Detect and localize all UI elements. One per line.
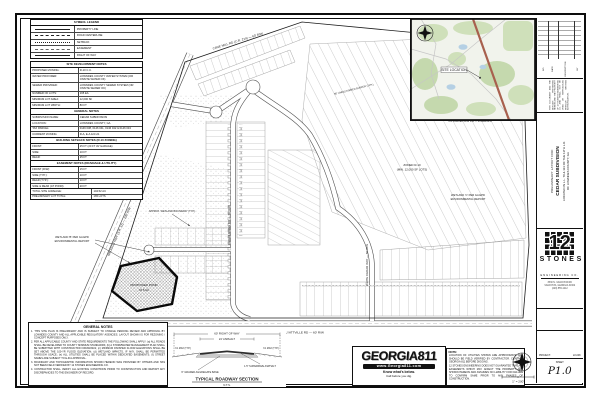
revision-header: DESCRIPTION <box>561 61 571 77</box>
project-name: CEDAR SUBDIVISION <box>555 115 560 227</box>
legend-line-sample <box>31 26 75 32</box>
legend-row: RIGHT OF WAY <box>31 53 142 59</box>
firm-name: STONES <box>540 256 583 263</box>
legend-line-sample <box>31 46 75 52</box>
legend-line-sample <box>31 40 75 46</box>
row-label: LOCATION: <box>31 121 79 126</box>
georgia811-logo: GEORGIA811 <box>352 349 445 363</box>
easement-notes-table: EASEMENT NOTES (DRAINAGE & UTILITY) FRON… <box>30 160 143 190</box>
project-number-row: PROJECT: 22-048 <box>537 352 583 359</box>
base-label: 6" GRADED AGGREGATE BASE <box>181 371 219 374</box>
row-value: 10 FT <box>79 150 142 155</box>
georgia811-tagline2: Call before you dig. <box>353 374 445 378</box>
row-value: 165 LOTS <box>92 195 142 200</box>
title-block-divider <box>537 308 583 309</box>
slope-label-right: 3:1 MAX (TYP.) <box>263 347 279 350</box>
legend-row: EASEMENT <box>31 46 142 53</box>
general-note: 4. CONTRACTOR SHALL VERIFY ALL EXISTING … <box>31 368 165 375</box>
legend-label: EASEMENT <box>75 47 142 50</box>
legend-label: SETBACK <box>75 41 142 44</box>
row-value: 80 FT <box>79 103 142 108</box>
vicinity-map: SITE LOCATION <box>410 18 536 121</box>
legend-label: ROAD CENTERLINE <box>75 34 142 37</box>
row-label: FRONT: <box>31 144 79 149</box>
legend-line-sample <box>31 33 75 39</box>
legend-line-sample <box>31 53 75 59</box>
row-label: SEWER PROVIDER: <box>31 83 79 91</box>
revision-header: BY <box>574 61 582 77</box>
project-location-2: OF LOWNDES COUNTY, GA <box>566 115 570 227</box>
legend-row: PROPERTY LINE <box>31 26 142 33</box>
roadway-section-drawing: 60' RIGHT OF WAY 24' ASPHALT 1.5" SUPERP… <box>168 327 286 387</box>
row-label: WATER PROVIDER: <box>31 74 79 82</box>
row-label: NUMBER OF LOTS: <box>31 92 79 97</box>
asphalt-label: 1.5" SUPERPAVE ASPHALT <box>244 365 276 368</box>
row-value: CEDAR SUBDIVISION <box>79 115 142 120</box>
project-info-table: GENERAL NOTES SUBDIVISION NAME:CEDAR SUB… <box>30 108 143 138</box>
row-label: MINIMUM LOT WIDTH: <box>31 103 79 108</box>
north-arrow-icon <box>510 350 534 374</box>
row-value: 10 FT <box>79 173 142 178</box>
row-value: 165 EA <box>79 92 142 97</box>
sheet-label: SHEET <box>537 361 583 364</box>
row-value: 15 FT <box>79 167 142 172</box>
project-number-label: PROJECT: <box>539 354 551 357</box>
row-label: PROPOSED ZONING: <box>31 68 79 73</box>
legend-label: RIGHT OF WAY <box>75 54 142 57</box>
table-row: SEWER PROVIDER:LOWNDES COUNTY SEWER SYST… <box>31 83 142 92</box>
roadway-section-detail: 60' RIGHT OF WAY 24' ASPHALT 1.5" SUPERP… <box>168 327 286 387</box>
dim-row-label: 60' RIGHT OF WAY <box>214 332 239 336</box>
row-value: 104.52 AC <box>92 189 142 194</box>
slope-label-left: 3:1 MAX (TYP.) <box>175 347 191 350</box>
row-value: 25 FT (20 FT W/ GARAGE) <box>79 144 142 149</box>
aggregate-base <box>196 355 258 357</box>
general-notes-box: GENERAL NOTES 1. THIS SITE PLAN IS PRELI… <box>28 322 168 386</box>
section-scale: N.T.S. <box>223 383 231 387</box>
row-label: TOTAL SITE ACREAGE: <box>31 189 92 194</box>
dim-asphalt-label: 24' ASPHALT <box>219 337 236 341</box>
revision-grid-divider <box>574 21 575 59</box>
plan-sheet-page: MADISON HWY (S.R. 31) — 100' R/WCANE MIL… <box>0 0 600 400</box>
firm-logo-block: 12 STONES ENGINEERING CO. 3530 N. VALDOS… <box>537 228 583 291</box>
map-compass-icon <box>417 25 433 41</box>
row-value: LOWNDES COUNTY SEWER SYSTEM (OR ONSITE S… <box>79 83 142 91</box>
vicinity-map-drawing: SITE LOCATION <box>411 19 535 120</box>
title-block-disclaimer: THIS DOCUMENT AND THE DESIGNS PRESENTED … <box>538 79 582 112</box>
section-title: TYPICAL ROADWAY SECTION <box>195 377 258 382</box>
title-block: NO. DATE DESCRIPTION BY THIS DOCUMENT AN… <box>536 18 583 383</box>
general-note: 3. BOUNDARY AND TOPOGRAPHIC INFORMATION … <box>31 360 165 367</box>
legend-row: SETBACK <box>31 40 142 47</box>
setback-notes-table: BUILDING SETBACK NOTES (R-10 ZONING) FRO… <box>30 137 143 161</box>
graphic-scale-bar: 1" = 200' <box>500 374 536 384</box>
symbol-legend-table: SYMBOL LEGEND PROPERTY LINE ROAD CENTERL… <box>30 19 143 59</box>
row-label: SIDE: <box>31 150 79 155</box>
row-label: FRONT (R/W): <box>31 167 79 172</box>
row-label: SUBDIVISION NAME: <box>31 115 79 120</box>
row-label: MINIMUM LOT AREA: <box>31 97 79 102</box>
project-title-block: PRELIMINARY LAYOUT FOR: CEDAR SUBDIVISIO… <box>537 113 583 229</box>
georgia811-website: www.Georgia811.com <box>363 364 435 370</box>
row-value: R-10 C.U. <box>79 68 142 73</box>
general-note: 1. THIS SITE PLAN IS PRELIMINARY AND IS … <box>31 330 165 340</box>
title-block-divider <box>537 330 583 331</box>
revision-grid-divider <box>558 21 559 59</box>
row-label: REAR (TYP.): <box>31 179 79 184</box>
georgia811-box: GEORGIA811 www.Georgia811.com Know what'… <box>352 346 446 386</box>
scale-label: 1" = 200' <box>512 380 524 384</box>
sheet-number: P1.0 <box>537 365 583 377</box>
project-number-value: 22-048 <box>573 354 580 357</box>
row-value: 10 FT <box>79 179 142 184</box>
general-note: 2. PER ALL APPLICABLE COUNTY AND STATE R… <box>31 340 165 360</box>
row-label: SIDE (TYP.): <box>31 173 79 178</box>
totals-table: TOTAL SITE ACREAGE:104.52 AC PRELIMINARY… <box>30 188 143 200</box>
row-value: LOWNDES COUNTY, GA <box>79 121 142 126</box>
row-label: TAX PARCEL: <box>31 127 79 132</box>
firm-address-3: (229) 555-1212 <box>537 288 583 291</box>
row-value: 0146 038, 0146 041, 0146 042 & 0146 043 <box>79 127 142 132</box>
site-development-notes-table: SITE DEVELOPMENT NOTES PROPOSED ZONING:R… <box>30 61 143 114</box>
revision-header: NO. <box>540 61 548 77</box>
firm-tagline: ENGINEERING CO. <box>541 274 580 279</box>
firm-logo-numeral: 12 <box>549 232 571 255</box>
revision-grid-divider <box>548 21 549 59</box>
row-value: 12,000 SF <box>79 97 142 102</box>
firm-logo-icon: 12 <box>545 232 574 255</box>
table-row: PRELIMINARY LOT TOTAL:165 LOTS <box>31 195 142 200</box>
revision-header: DATE <box>549 61 557 77</box>
site-location-label: SITE LOCATION <box>441 68 467 72</box>
asphalt-pavement <box>200 351 254 355</box>
project-for-label: PRELIMINARY LAYOUT FOR: <box>550 115 554 227</box>
legend-row: ROAD CENTERLINE <box>31 33 142 40</box>
table-row: WATER PROVIDER:LOWNDES COUNTY WATER SYST… <box>31 74 142 83</box>
legend-label: PROPERTY LINE <box>75 28 142 31</box>
row-label: PRELIMINARY LOT TOTAL: <box>31 195 92 200</box>
row-value: LOWNDES COUNTY WATER SYSTEM (OR ONSITE W… <box>79 74 142 82</box>
